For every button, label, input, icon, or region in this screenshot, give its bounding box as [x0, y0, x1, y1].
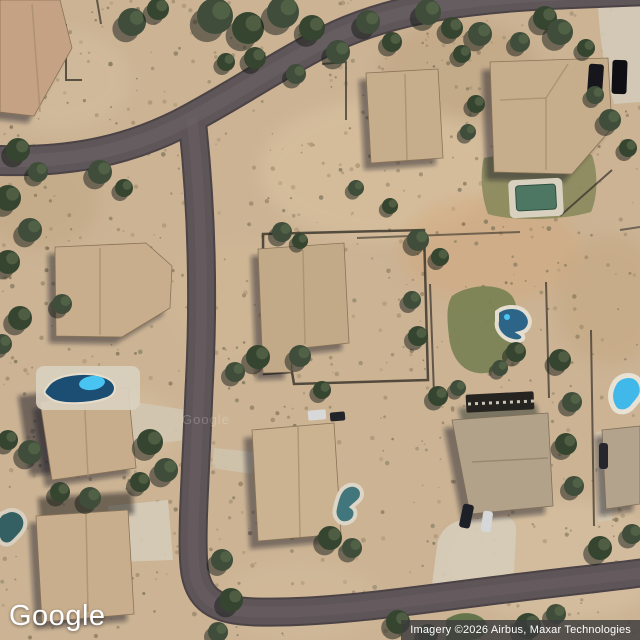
tree-highlight: [515, 344, 525, 354]
scrub-dot: [68, 348, 71, 351]
scrub-dot: [451, 207, 455, 211]
scrub-dot: [297, 374, 302, 379]
scrub-dot: [380, 368, 383, 371]
house-roof: [602, 426, 640, 509]
scrub-dot: [409, 368, 413, 372]
scrub-dot: [426, 45, 428, 47]
tree-highlight: [336, 42, 348, 54]
scrub-dot: [383, 415, 386, 418]
scrub-dot: [625, 110, 627, 112]
scrub-dot: [123, 230, 125, 232]
scrub-dot: [101, 26, 103, 28]
scrub-dot: [170, 192, 172, 194]
scrub-dot: [380, 417, 382, 419]
scrub-dot: [117, 626, 120, 629]
scrub-dot: [91, 11, 93, 13]
scrub-dot: [162, 223, 166, 227]
scrub-dot: [70, 228, 72, 230]
scrub-dot: [439, 437, 441, 439]
scrub-dot: [292, 214, 296, 218]
scrub-dot: [532, 523, 534, 525]
scrub-dot: [111, 344, 113, 346]
tree-highlight: [220, 551, 231, 562]
scrub-dot: [79, 40, 83, 44]
scrub-dot: [543, 539, 547, 543]
tree-highlight: [355, 182, 363, 190]
scrub-dot: [237, 634, 239, 636]
scrub-dot: [505, 281, 508, 284]
scrub-dot: [107, 7, 110, 10]
tree-highlight: [564, 435, 575, 446]
scrub-dot: [601, 338, 604, 341]
scrub-dot: [134, 185, 138, 189]
scrub-dot: [573, 307, 577, 311]
wall-line: [546, 282, 549, 398]
scrub-dot: [34, 194, 37, 197]
tree-highlight: [426, 2, 439, 15]
scrub-dot: [391, 353, 394, 356]
scrub-dot: [431, 524, 435, 528]
tree-highlight: [246, 15, 262, 31]
pool: [504, 314, 510, 320]
scrub-dot: [287, 416, 290, 419]
scrub-dot: [423, 359, 425, 361]
scrub-dot: [142, 592, 145, 595]
scrub-dot: [491, 226, 495, 230]
scrub-dot: [557, 262, 559, 264]
scrub-dot: [553, 58, 554, 59]
scrub-dot: [525, 280, 527, 282]
scrub-dot: [134, 470, 137, 473]
scrub-dot: [572, 294, 577, 299]
scrub-dot: [291, 582, 294, 585]
tree-highlight: [417, 328, 427, 338]
scrub-dot: [371, 257, 374, 260]
tree-highlight: [217, 624, 227, 634]
scrub-dot: [282, 209, 285, 212]
scrub-dot: [109, 217, 113, 221]
scrub-dot: [53, 195, 55, 197]
satellite-map-viewport[interactable]: Google Google Imagery ©2026 Airbus, Maxa…: [0, 0, 640, 640]
scrub-dot: [502, 226, 504, 228]
car: [611, 60, 627, 95]
scrub-dot: [356, 557, 358, 559]
scrub-dot: [406, 284, 408, 286]
tree-highlight: [499, 362, 507, 370]
tree-highlight: [627, 141, 636, 150]
scrub-dot: [419, 172, 423, 176]
tree-highlight: [321, 383, 330, 392]
scrub-dot: [49, 199, 52, 202]
scrub-dot: [17, 134, 20, 137]
scrub-dot: [539, 291, 543, 295]
scrub-dot: [149, 376, 153, 380]
scrub-dot: [381, 536, 385, 540]
tree-highlight: [467, 126, 475, 134]
scrub-dot: [391, 438, 394, 441]
scrub-dot: [238, 481, 243, 486]
scrub-dot: [27, 527, 29, 529]
scrub-dot: [378, 66, 382, 70]
scrub-dot: [397, 313, 401, 317]
scrub-dot: [355, 163, 360, 168]
scrub-dot: [632, 414, 635, 417]
scrub-dot: [236, 347, 238, 349]
scrub-dot: [254, 562, 256, 564]
scrub-dot: [501, 387, 503, 389]
tree-highlight: [7, 432, 17, 442]
scrub-dot: [327, 174, 331, 178]
scrub-dot: [134, 352, 137, 355]
scrub-dot: [153, 610, 156, 613]
scrub-dot: [219, 538, 221, 540]
scrub-dot: [211, 470, 215, 474]
scrub-dot: [403, 190, 405, 192]
scrub-dot: [396, 169, 400, 173]
scrub-dot: [381, 68, 384, 71]
scrub-dot: [252, 166, 256, 170]
scrub-dot: [10, 284, 15, 289]
scrub-dot: [529, 228, 532, 231]
scrub-dot: [351, 59, 355, 63]
scrub-dot: [228, 387, 230, 389]
scrub-dot: [388, 277, 390, 279]
scrub-dot: [214, 51, 217, 54]
scrub-dot: [209, 548, 213, 552]
scrub-dot: [3, 384, 5, 386]
tree-highlight: [298, 347, 309, 358]
scrub-dot: [547, 226, 552, 231]
tree-highlight: [253, 49, 264, 60]
scrub-dot: [437, 500, 441, 504]
scrub-dot: [384, 170, 386, 172]
scrub-dot: [636, 168, 638, 170]
imagery-attribution: Imagery ©2026 Airbus, Maxar Technologies: [401, 620, 640, 640]
scrub-dot: [271, 166, 276, 171]
scrub-dot: [136, 78, 138, 80]
scrub-dot: [564, 264, 567, 267]
scrub-dot: [216, 529, 218, 531]
scrub-dot: [339, 168, 343, 172]
wall-line: [620, 227, 640, 230]
scrub-dot: [249, 201, 254, 206]
tree-highlight: [543, 8, 555, 20]
scrub-dot: [570, 530, 572, 532]
scrub-dot: [301, 144, 303, 146]
scrub-dot: [94, 634, 98, 638]
scrub-dot: [557, 268, 560, 271]
scrub-dot: [596, 153, 599, 156]
scrub-dot: [486, 20, 488, 22]
tree-highlight: [148, 432, 161, 445]
scrub-dot: [565, 527, 567, 529]
scrub-dot: [14, 360, 18, 364]
scrub-dot: [531, 236, 534, 239]
scrub-dot: [385, 461, 389, 465]
scrub-dot: [38, 118, 40, 120]
scrub-dot: [46, 247, 49, 250]
scrub-dot: [511, 255, 514, 258]
scrub-dot: [475, 157, 478, 160]
tree-highlight: [16, 140, 28, 152]
scrub-dot: [138, 350, 143, 355]
scrub-dot: [580, 602, 582, 604]
scrub-dot: [344, 131, 348, 135]
scrub-dot: [49, 227, 53, 231]
scrub-dot: [247, 223, 249, 225]
scrub-dot: [178, 47, 181, 50]
scrub-dot: [632, 202, 634, 204]
tree-highlight: [439, 250, 448, 259]
scrub-dot: [598, 145, 601, 148]
scrub-dot: [424, 443, 426, 445]
scrub-dot: [619, 217, 623, 221]
tree-highlight: [351, 540, 361, 550]
scrub-dot: [237, 582, 240, 585]
car: [308, 409, 327, 421]
scrub-dot: [224, 258, 226, 260]
scrub-dot: [242, 381, 245, 384]
scrub-dot: [340, 1, 345, 6]
scrub-dot: [420, 292, 424, 296]
scrub-dot: [329, 406, 332, 409]
tree-highlight: [28, 220, 40, 232]
scrub-dot: [425, 39, 427, 41]
scrub-dot: [79, 236, 82, 239]
tree-highlight: [139, 474, 149, 484]
scrub-dot: [278, 181, 282, 185]
scrub-dot: [110, 1, 113, 4]
scrub-dot: [521, 24, 523, 26]
scrub-dot: [568, 613, 571, 616]
pool: [611, 375, 640, 411]
scrub-dot: [624, 233, 628, 237]
tree-highlight: [295, 66, 305, 76]
scrub-dot: [552, 392, 555, 395]
scrub-dot: [116, 352, 120, 356]
scrub-dot: [386, 183, 390, 187]
scrub-dot: [172, 281, 174, 283]
scrub-dot: [614, 518, 619, 523]
scrub-dot: [381, 510, 385, 514]
scrub-dot: [502, 36, 506, 40]
scrub-dot: [469, 86, 473, 90]
scrub-dot: [192, 612, 197, 617]
scrub-dot: [169, 382, 173, 386]
tree-highlight: [212, 2, 230, 20]
scrub-dot: [172, 0, 176, 3]
scrub-dot: [574, 14, 577, 17]
tree-highlight: [28, 442, 40, 454]
scrub-dot: [156, 571, 158, 573]
scrub-dot: [466, 87, 469, 90]
scrub-dot: [0, 580, 4, 584]
scrub-dot: [9, 486, 11, 488]
scrub-dot: [265, 199, 269, 203]
car: [599, 443, 608, 469]
scrub-dot: [329, 356, 333, 360]
scrub-dot: [565, 533, 569, 537]
scrub-dot: [584, 255, 588, 259]
house-roof: [452, 413, 553, 514]
scrub-dot: [415, 447, 419, 451]
scrub-dot: [433, 65, 436, 68]
scrub-dot: [301, 581, 305, 585]
wall-line: [97, 0, 101, 24]
scrub-dot: [178, 168, 180, 170]
scrub-dot: [250, 563, 255, 568]
scrub-dot: [39, 336, 43, 340]
scrub-dot: [243, 290, 247, 294]
scrub-dot: [566, 428, 570, 432]
scrub-dot: [546, 270, 549, 273]
scrub-dot: [10, 125, 14, 129]
scrub-dot: [578, 232, 581, 235]
scrub-dot: [174, 51, 179, 56]
scrub-dot: [636, 344, 638, 346]
tree-highlight: [450, 19, 461, 30]
pool: [497, 307, 530, 341]
tree-highlight: [594, 88, 603, 97]
tree-highlight: [229, 590, 241, 602]
scrub-dot: [3, 557, 7, 561]
scrub-dot: [615, 273, 616, 274]
scrub-dot: [422, 42, 424, 44]
scrub-dot: [150, 52, 152, 54]
scrub-dot: [465, 286, 467, 288]
scrub-dot: [164, 149, 167, 152]
scrub-dot: [228, 358, 230, 360]
scrub-dot: [349, 167, 353, 171]
scrub-dot: [151, 67, 154, 70]
scrub-dot: [136, 573, 140, 577]
tree-highlight: [585, 41, 594, 50]
scrub-dot: [67, 102, 69, 104]
scrub-dot: [359, 361, 363, 365]
satellite-imagery: [0, 0, 640, 640]
scrub-dot: [303, 392, 305, 394]
scrub-dot: [575, 335, 579, 339]
scrub-dot: [15, 556, 17, 558]
tree-highlight: [461, 47, 470, 56]
scrub-dot: [474, 242, 478, 246]
scrub-dot: [357, 243, 359, 245]
scrub-dot: [109, 119, 111, 121]
scrub-dot: [421, 440, 423, 442]
scrub-dot: [10, 362, 12, 364]
scrub-dot: [292, 408, 294, 410]
scrub-dot: [563, 478, 565, 480]
scrub-dot: [462, 222, 466, 226]
scrub-dot: [95, 19, 97, 21]
scrub-dot: [164, 91, 166, 93]
scrub-dot: [434, 534, 438, 538]
scrub-dot: [409, 571, 411, 573]
scrub-dot: [427, 62, 429, 64]
scrub-dot: [440, 458, 442, 460]
tree-highlight: [98, 162, 110, 174]
tree-highlight: [299, 235, 307, 243]
scrub-dot: [372, 585, 377, 590]
scrub-dot: [337, 440, 342, 445]
tree-highlight: [558, 351, 569, 362]
scrub-dot: [108, 62, 113, 67]
scrub-dot: [2, 243, 6, 247]
scrub-dot: [399, 239, 403, 243]
scrub-dot: [67, 213, 71, 217]
scrub-dot: [463, 405, 465, 407]
map-watermark: Google: [182, 412, 230, 427]
scrub-dot: [343, 580, 347, 584]
scrub-dot: [228, 516, 231, 519]
tree-highlight: [61, 296, 71, 306]
scrub-dot: [2, 291, 3, 292]
layer-structures: [466, 391, 535, 413]
scrub-dot: [161, 152, 166, 157]
scrub-dot: [271, 418, 276, 423]
scrub-dot: [491, 41, 493, 43]
tree-highlight: [457, 382, 465, 390]
scrub-dot: [232, 496, 235, 499]
scrub-dot: [215, 143, 217, 145]
scrub-dot: [451, 480, 455, 484]
scrub-dot: [182, 4, 187, 9]
scrub-dot: [385, 58, 387, 60]
scrub-dot: [590, 234, 593, 237]
tree-highlight: [573, 478, 583, 488]
scrub-dot: [270, 150, 271, 151]
scrub-dot: [9, 468, 13, 472]
scrub-dot: [148, 100, 153, 105]
scrub-dot: [281, 632, 283, 634]
scrub-dot: [115, 122, 117, 124]
scrub-dot: [150, 325, 153, 328]
scrub-dot: [463, 182, 467, 186]
google-logo[interactable]: Google: [9, 600, 106, 633]
scrub-dot: [617, 308, 619, 310]
scrub-dot: [436, 346, 438, 348]
tree-highlight: [411, 293, 420, 302]
scrub-dot: [117, 349, 119, 351]
scrub-dot: [621, 513, 626, 518]
scrub-dot: [579, 325, 584, 330]
scrub-dot: [383, 396, 387, 400]
house-roof: [252, 423, 341, 541]
scrub-dot: [425, 449, 428, 452]
scrub-dot: [129, 0, 132, 3]
scrub-dot: [217, 211, 220, 214]
scrub-dot: [510, 282, 513, 285]
scrub-dot: [155, 578, 157, 580]
tree-highlight: [130, 11, 144, 25]
scrub-dot: [6, 589, 8, 591]
tree-highlight: [256, 347, 268, 359]
scrub-dot: [330, 79, 333, 82]
scrub-dot: [577, 612, 579, 614]
scrub-dot: [242, 551, 245, 554]
scrub-dot: [309, 142, 314, 147]
scrub-dot: [291, 185, 296, 190]
scrub-dot: [329, 74, 332, 77]
scrub-dot: [454, 85, 458, 89]
scrub-dot: [427, 36, 429, 38]
scrub-dot: [386, 362, 387, 363]
scrub-dot: [580, 598, 583, 601]
scrub-dot: [454, 240, 457, 243]
scrub-dot: [600, 396, 604, 400]
scrub-dot: [188, 8, 192, 12]
scrub-dot: [26, 372, 29, 375]
